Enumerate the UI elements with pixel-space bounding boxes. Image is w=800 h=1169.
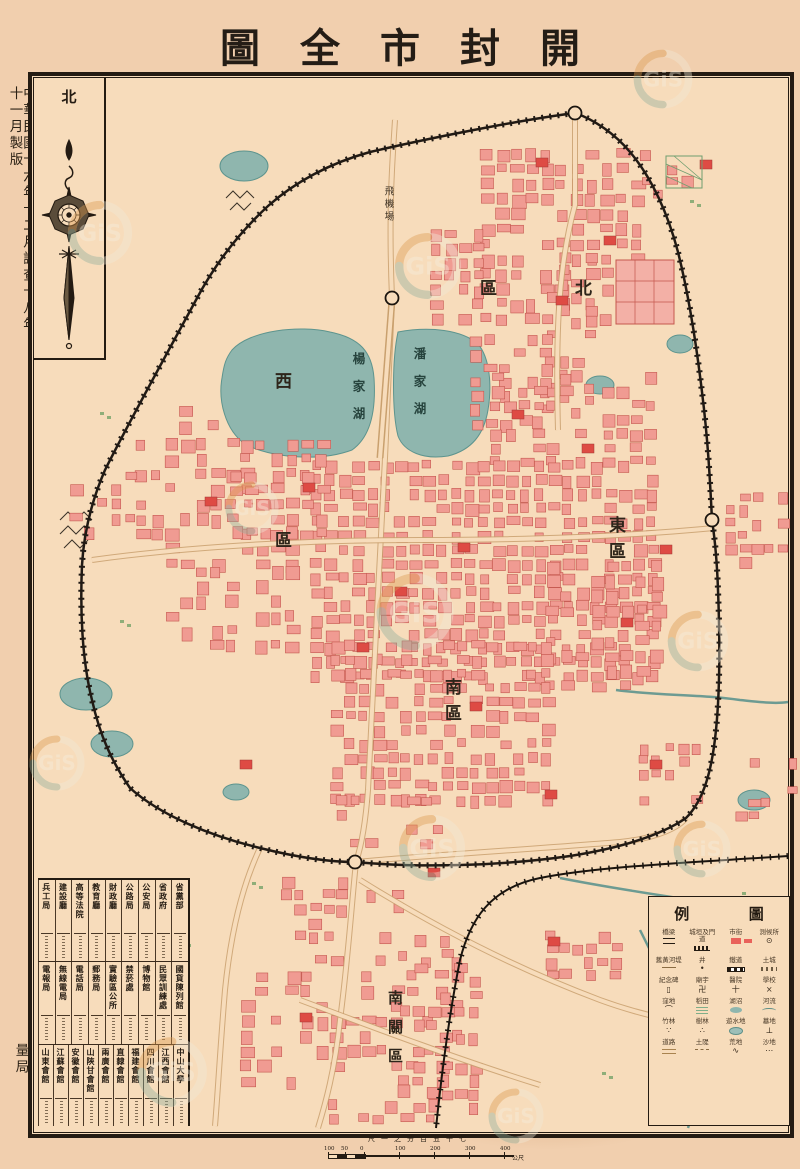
legend-entry: 醫院十 — [720, 977, 752, 994]
scale-tick-number: 300 — [465, 1146, 476, 1152]
directory-entry-name: 電話局 — [76, 965, 84, 1013]
legend-entry-label: 舊黃河堤 — [653, 957, 685, 964]
legend-symbol-icon: ⊥ — [754, 1026, 786, 1036]
map-sheet: 圖全市封開 中華民國十六年十二月調查十八年十一月製版 河南陸軍測量局 北 — [0, 0, 800, 1169]
legend-entry-label: 土隄 — [687, 1039, 719, 1046]
lake-label-panjiahu: 潘家湖 — [412, 347, 425, 430]
directory-divider — [124, 1015, 137, 1016]
legend-entry: 竹林∵ — [653, 1018, 685, 1035]
directory-entry: 山陝甘會館 — [83, 1045, 98, 1126]
legend-entry-label: 市街 — [720, 929, 752, 936]
directory-divider — [130, 1098, 141, 1099]
directory-entry-name: 省政府 — [159, 883, 167, 931]
legend-entry-label: 測候所 — [754, 929, 786, 936]
scale-tick — [328, 1152, 329, 1159]
legend-entry: 荒地∿ — [720, 1039, 752, 1056]
directory-divider — [74, 933, 87, 934]
directory-divider — [157, 1015, 170, 1016]
legend-entry-label: 遊水地 — [720, 1018, 752, 1025]
scale-tick-number: 100 — [324, 1146, 335, 1152]
legend-symbol-icon — [687, 1046, 719, 1056]
district-label-north: 區北 — [480, 274, 670, 299]
legend-entry: 舊黃河堤 — [653, 957, 685, 974]
legend-entry: 市街 — [720, 929, 752, 954]
lake-label-yangjiahu: 楊家湖 — [351, 352, 364, 435]
directory-divider — [141, 1015, 154, 1016]
legend-entry-label: 湖沼 — [720, 998, 752, 1005]
legend-entry-label: 廟宇 — [687, 977, 719, 984]
directory-entry-name: 福建會館 — [132, 1048, 140, 1096]
directory-entry-address-marks — [120, 1101, 123, 1123]
scale-unit: 公尺 — [512, 1153, 524, 1162]
directory-entry-address-marks — [112, 936, 115, 958]
directory-entry-name: 江蘇會館 — [57, 1048, 65, 1096]
legend-symbol-icon: ∴ — [687, 1026, 719, 1036]
directory-entry: 省黨部 — [171, 880, 188, 961]
scale-tick — [469, 1152, 470, 1159]
directory-entry: 教育廳 — [88, 880, 105, 961]
directory-entry-name: 實驗區公所 — [109, 965, 117, 1013]
directory-entry: 國貨陳列館 — [171, 962, 188, 1043]
legend-entry: 紀念碑▯ — [653, 977, 685, 994]
directory-divider — [70, 1098, 81, 1099]
legend-panel: 例 圖 測候所⊙市街城垣及門道橋梁土城鐵道井•舊黃河堤學校×醫院十廟宇卍紀念碑▯… — [648, 896, 790, 1126]
legend-entry-label: 樹林 — [687, 1018, 719, 1025]
scale-tick — [434, 1152, 435, 1159]
legend-entry: 橋梁 — [653, 929, 685, 954]
legend-entry: 道路 — [653, 1039, 685, 1056]
legend-entry-label: 道路 — [653, 1039, 685, 1046]
legend-symbol-icon: ∿ — [720, 1046, 752, 1056]
legend-entry-label: 學校 — [754, 977, 786, 984]
scale-tick — [399, 1152, 400, 1159]
legend-symbol-icon: ∵ — [653, 1026, 685, 1036]
directory-entry-address-marks — [129, 1018, 132, 1040]
directory-entry-address-marks — [45, 1101, 48, 1123]
legend-entry-label: 井 — [687, 957, 719, 964]
directory-entry: 安徽會館 — [68, 1045, 83, 1126]
directory-entry-name: 國貨陳列館 — [176, 965, 184, 1013]
directory-entry-address-marks — [62, 1018, 65, 1040]
directory-divider — [100, 1098, 111, 1099]
district-label-south-suburb: 南關區 — [387, 990, 402, 1077]
directory-section-public-institutions: 國貨陳列館民眾訓練處博物館禁菸處實驗區公所郵務局電話局無線電局電報局 — [38, 962, 188, 1044]
directory-entry: 直隸會館 — [113, 1045, 128, 1126]
directory-divider — [57, 1015, 70, 1016]
directory-divider — [107, 1015, 120, 1016]
airfield-label: 飛機場 — [383, 186, 393, 224]
directory-entry-name: 郵務局 — [93, 965, 101, 1013]
directory-entry-name: 建設廳 — [59, 883, 67, 931]
scale-tick — [345, 1152, 346, 1159]
directory-divider — [41, 933, 54, 934]
directory-entry-name: 無線電局 — [59, 965, 67, 1013]
legend-entry: 河流 — [754, 998, 786, 1015]
directory-entry: 江西會館 — [158, 1045, 173, 1126]
directory-divider — [40, 1098, 51, 1099]
directory-entry-name: 直隸會館 — [117, 1048, 125, 1096]
legend-symbol-icon — [687, 1005, 719, 1015]
directory-entry-name: 公路局 — [126, 883, 134, 931]
directory-entry-name: 四川會館 — [147, 1048, 155, 1096]
legend-entry: 學校× — [754, 977, 786, 994]
directory-entry-address-marks — [165, 1101, 168, 1123]
directory-entry-address-marks — [179, 1018, 182, 1040]
directory-entry: 公路局 — [121, 880, 138, 961]
legend-entry-label: 河流 — [754, 998, 786, 1005]
directory-entry-address-marks — [105, 1101, 108, 1123]
legend-entry-label: 竹林 — [653, 1018, 685, 1025]
directory-entry-name: 兩廣會館 — [102, 1048, 110, 1096]
legend-entry-label: 墓地 — [754, 1018, 786, 1025]
compass-north-label: 北 — [34, 86, 104, 107]
legend-symbol-icon — [720, 1005, 752, 1015]
directory-entry-name: 兵工局 — [43, 883, 51, 931]
directory-divider — [57, 933, 70, 934]
directory-entry: 江蘇會館 — [53, 1045, 68, 1126]
directory-entry-name: 教育廳 — [93, 883, 101, 931]
legend-entry: 測候所⊙ — [754, 929, 786, 954]
district-label-west: 西區 — [272, 372, 289, 690]
directory-entry: 實驗區公所 — [105, 962, 122, 1043]
directory-entry: 四川會館 — [143, 1045, 158, 1126]
directory-divider — [124, 933, 137, 934]
legend-symbol-icon: 十 — [720, 985, 752, 995]
directory-entry: 財政廳 — [105, 880, 122, 961]
legend-title-char-left: 例 — [674, 903, 689, 924]
directory-entry: 無線電局 — [55, 962, 72, 1043]
legend-grid: 測候所⊙市街城垣及門道橋梁土城鐵道井•舊黃河堤學校×醫院十廟宇卍紀念碑▯河流湖沼… — [649, 926, 789, 1059]
scale-ratio-label: 尺一之分百五千七 — [300, 1134, 540, 1144]
legend-entry: 井• — [687, 957, 719, 974]
directory-entry: 高等法院 — [71, 880, 88, 961]
directory-entry: 省政府 — [155, 880, 172, 961]
directory-entry: 郵務局 — [88, 962, 105, 1043]
directory-divider — [174, 1015, 187, 1016]
legend-symbol-icon: ▯ — [653, 985, 685, 995]
directory-entry-address-marks — [45, 936, 48, 958]
directory-entry-name: 電報局 — [43, 965, 51, 1013]
directory-entry-address-marks — [135, 1101, 138, 1123]
district-label-south: 南區 — [442, 678, 459, 730]
directory-divider — [141, 933, 154, 934]
directory-entry: 電報局 — [38, 962, 55, 1043]
directory-entry: 兵工局 — [38, 880, 55, 961]
district-label-east: 東區 — [606, 516, 623, 568]
legend-entry: 墓地⊥ — [754, 1018, 786, 1035]
directory-entry-address-marks — [112, 1018, 115, 1040]
directory-entry-name: 高等法院 — [76, 883, 84, 931]
directory-entry-address-marks — [45, 1018, 48, 1040]
legend-entry-label: 沙地 — [754, 1039, 786, 1046]
legend-entry-label: 醫院 — [720, 977, 752, 984]
legend-symbol-icon: ⋯ — [754, 1046, 786, 1056]
directory-entry-name: 民眾訓練處 — [159, 965, 167, 1013]
directory-entry-address-marks — [95, 1018, 98, 1040]
directory-entry-name: 江西會館 — [162, 1048, 170, 1096]
directory-entry-name: 山東會館 — [42, 1048, 50, 1096]
legend-entry: 廟宇卍 — [687, 977, 719, 994]
directory-entry-address-marks — [60, 1101, 63, 1123]
directory-entry: 電話局 — [71, 962, 88, 1043]
directory-entry-address-marks — [180, 1101, 183, 1123]
legend-entry: 沙地⋯ — [754, 1039, 786, 1056]
legend-entry-label: 稻田 — [687, 998, 719, 1005]
directory-entry: 福建會館 — [128, 1045, 143, 1126]
directory-divider — [115, 1098, 126, 1099]
legend-entry-label: 荒地 — [720, 1039, 752, 1046]
legend-symbol-icon — [720, 936, 752, 946]
directory-entry-address-marks — [179, 936, 182, 958]
directory-entry: 兩廣會館 — [98, 1045, 113, 1126]
directory-divider — [91, 1015, 104, 1016]
directory-entry-name: 財政廳 — [109, 883, 117, 931]
legend-symbol-icon: ⌒ — [653, 1005, 685, 1015]
directory-entry-address-marks — [62, 936, 65, 958]
scale-tick — [364, 1152, 365, 1159]
institution-directory: 省黨部省政府公安局公路局財政廳教育廳高等法院建設廳兵工局國貨陳列館民眾訓練處博物… — [38, 878, 190, 1126]
legend-symbol-icon — [720, 1026, 752, 1036]
legend-entry: 鐵道 — [720, 957, 752, 974]
legend-symbol-icon: ⊙ — [754, 936, 786, 946]
scale-tick — [504, 1152, 505, 1159]
directory-divider — [41, 1015, 54, 1016]
scale-tick-number: 50 — [341, 1146, 348, 1152]
legend-symbol-icon: × — [754, 985, 786, 995]
legend-title-char-right: 圖 — [749, 903, 764, 924]
legend-entry-label: 土城 — [754, 957, 786, 964]
scale-tick-number: 400 — [500, 1146, 511, 1152]
legend-symbol-icon: • — [687, 964, 719, 974]
scale-tick-number: 200 — [430, 1146, 441, 1152]
legend-entry: 窪地⌒ — [653, 998, 685, 1015]
legend-symbol-icon — [653, 1046, 685, 1056]
legend-entry: 稻田 — [687, 998, 719, 1015]
scale-bar: 尺一之分百五千七 100500100200300400公尺 — [300, 1134, 540, 1162]
directory-entry-name: 山陝甘會館 — [87, 1048, 95, 1096]
directory-divider — [160, 1098, 171, 1099]
directory-entry-address-marks — [162, 936, 165, 958]
legend-entry: 土隄 — [687, 1039, 719, 1056]
legend-symbol-icon — [653, 936, 685, 946]
legend-entry: 遊水地 — [720, 1018, 752, 1035]
legend-title: 例 圖 — [674, 903, 764, 924]
legend-entry-label: 鐵道 — [720, 957, 752, 964]
directory-entry: 公安局 — [138, 880, 155, 961]
directory-entry-address-marks — [79, 936, 82, 958]
directory-entry-address-marks — [75, 1101, 78, 1123]
scale-tick-number: 0 — [360, 1146, 364, 1152]
legend-entry: 土城 — [754, 957, 786, 974]
legend-symbol-icon — [754, 1005, 786, 1015]
page-title: 圖全市封開 — [0, 16, 800, 74]
directory-divider — [107, 933, 120, 934]
directory-entry: 民眾訓練處 — [155, 962, 172, 1043]
directory-divider — [91, 933, 104, 934]
directory-divider — [157, 933, 170, 934]
directory-divider — [175, 1098, 186, 1099]
legend-symbol-icon — [687, 944, 719, 954]
scale-tick-number: 100 — [395, 1146, 406, 1152]
legend-symbol-icon — [754, 964, 786, 974]
directory-entry-address-marks — [162, 1018, 165, 1040]
legend-symbol-icon — [720, 964, 752, 974]
directory-section-guild-halls-universities: 中山大學江西會館四川會館福建會館直隸會館兩廣會館山陝甘會館安徽會館江蘇會館山東會… — [38, 1045, 188, 1126]
directory-entry-name: 安徽會館 — [72, 1048, 80, 1096]
legend-entry: 城垣及門道 — [687, 929, 719, 954]
directory-divider — [174, 933, 187, 934]
directory-entry-name: 省黨部 — [176, 883, 184, 931]
legend-entry-label: 紀念碑 — [653, 977, 685, 984]
compass-panel: 北 — [34, 78, 106, 360]
directory-entry-address-marks — [145, 936, 148, 958]
directory-divider — [145, 1098, 156, 1099]
legend-entry: 樹林∴ — [687, 1018, 719, 1035]
legend-entry-label: 橋梁 — [653, 929, 685, 936]
directory-entry-name: 公安局 — [143, 883, 151, 931]
directory-entry: 山東會館 — [38, 1045, 53, 1126]
directory-section-government-offices: 省黨部省政府公安局公路局財政廳教育廳高等法院建設廳兵工局 — [38, 880, 188, 962]
legend-entry-label: 窪地 — [653, 998, 685, 1005]
directory-entry-name: 中山大學 — [177, 1048, 185, 1096]
directory-entry-address-marks — [79, 1018, 82, 1040]
directory-entry-address-marks — [145, 1018, 148, 1040]
legend-symbol-icon — [653, 964, 685, 974]
directory-entry-name: 禁菸處 — [126, 965, 134, 1013]
directory-entry-address-marks — [90, 1101, 93, 1123]
directory-entry-address-marks — [95, 936, 98, 958]
legend-entry: 湖沼 — [720, 998, 752, 1015]
directory-divider — [85, 1098, 96, 1099]
directory-entry-address-marks — [129, 936, 132, 958]
directory-entry: 禁菸處 — [121, 962, 138, 1043]
directory-entry: 中山大學 — [173, 1045, 188, 1126]
directory-divider — [55, 1098, 66, 1099]
directory-entry: 建設廳 — [55, 880, 72, 961]
directory-entry-name: 博物館 — [143, 965, 151, 1013]
compass-rose-icon — [34, 78, 104, 358]
legend-symbol-icon: 卍 — [687, 985, 719, 995]
directory-entry: 博物館 — [138, 962, 155, 1043]
scale-strip: 100500100200300400公尺 — [300, 1146, 540, 1162]
legend-entry-label: 城垣及門道 — [687, 929, 719, 944]
directory-divider — [74, 1015, 87, 1016]
directory-entry-address-marks — [150, 1101, 153, 1123]
